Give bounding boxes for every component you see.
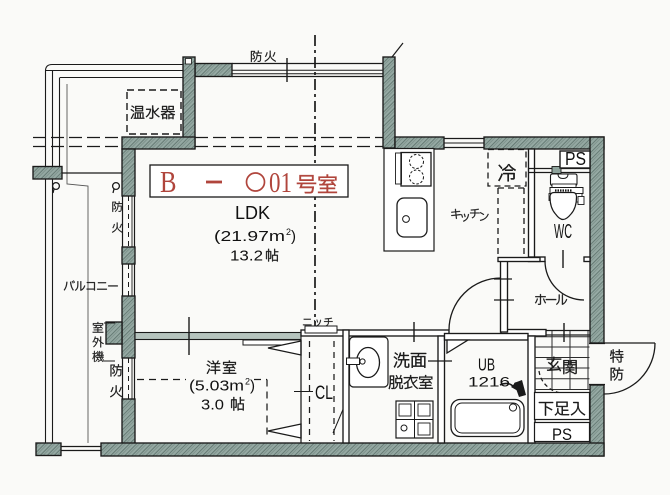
svg-text:(21.97m: (21.97m — [214, 228, 285, 245]
svg-text:UB: UB — [478, 355, 495, 375]
svg-text:01: 01 — [269, 167, 292, 199]
svg-text:WC: WC — [554, 221, 572, 243]
svg-text:B: B — [160, 164, 177, 199]
svg-text:13.2: 13.2 — [230, 248, 263, 265]
svg-text:PS: PS — [552, 426, 572, 444]
svg-text:3.0: 3.0 — [201, 397, 224, 414]
svg-text:1216: 1216 — [468, 374, 510, 390]
svg-text:): ) — [250, 378, 255, 395]
svg-text:): ) — [291, 228, 296, 245]
svg-text:(5.03m: (5.03m — [189, 378, 244, 395]
svg-text:PS: PS — [565, 149, 586, 169]
svg-text:LDK: LDK — [235, 203, 270, 223]
svg-text:CL: CL — [315, 383, 333, 404]
